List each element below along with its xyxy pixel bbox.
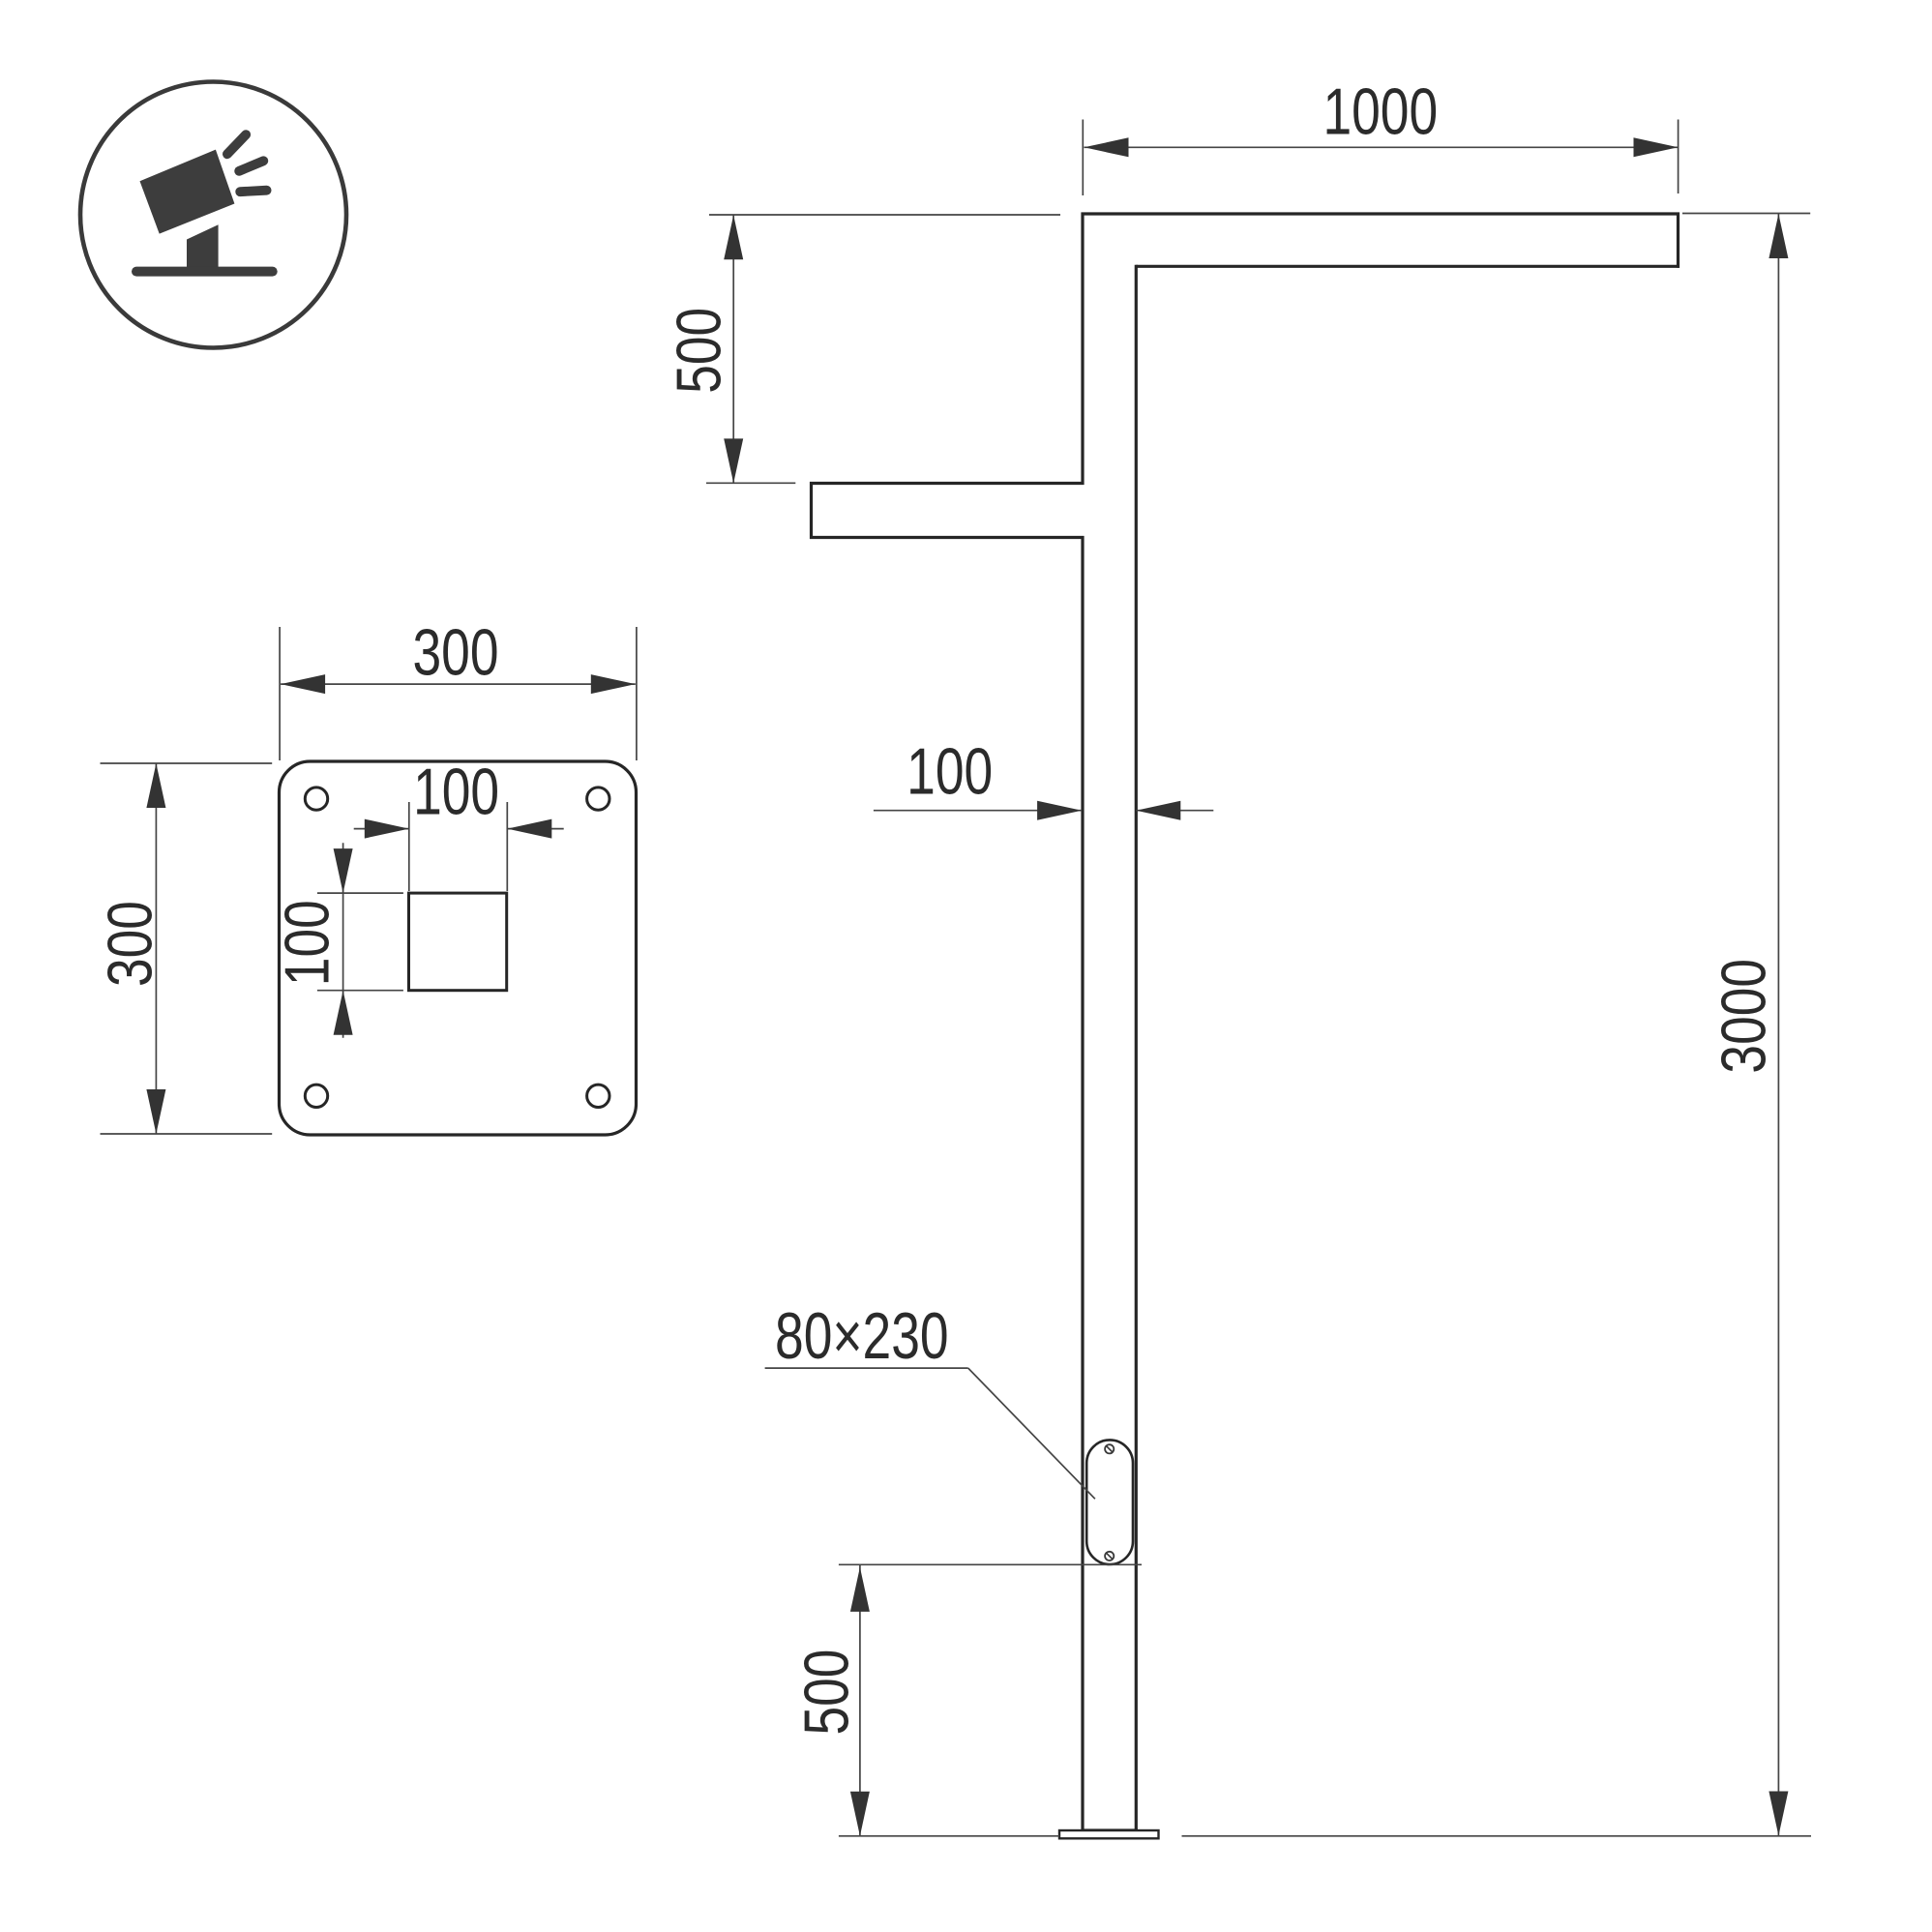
svg-text:1000: 1000 [1323,74,1438,148]
svg-text:300: 300 [94,901,164,987]
svg-text:100: 100 [413,755,499,828]
svg-text:300: 300 [412,615,498,689]
svg-text:100: 100 [271,900,342,986]
svg-text:500: 500 [663,308,733,394]
svg-text:80×230: 80×230 [775,1299,949,1373]
svg-text:3000: 3000 [1708,959,1778,1074]
svg-text:100: 100 [907,734,993,808]
svg-text:500: 500 [790,1650,861,1736]
